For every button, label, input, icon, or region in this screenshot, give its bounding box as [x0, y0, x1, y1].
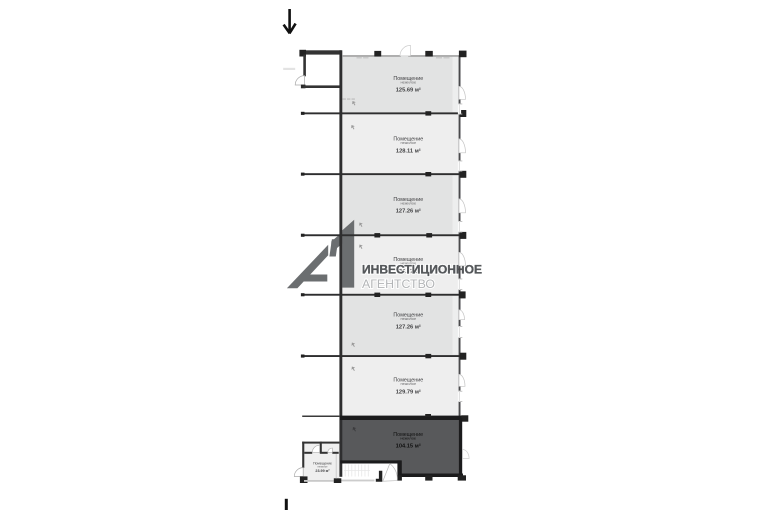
svg-text:нежилое: нежилое: [400, 79, 416, 84]
svg-text:АГЕНТСТВО: АГЕНТСТВО: [362, 277, 435, 291]
svg-text:127.26 м²: 127.26 м²: [396, 208, 421, 215]
svg-text:нежилое: нежилое: [400, 381, 416, 386]
svg-text:128.11 м²: 128.11 м²: [396, 147, 421, 154]
svg-text:нежилое: нежилое: [400, 316, 416, 321]
svg-text:нежилое: нежилое: [400, 200, 416, 205]
svg-text:127.26 м²: 127.26 м²: [396, 323, 421, 330]
svg-text:нежилое: нежилое: [400, 140, 416, 145]
svg-text:нежилое: нежилое: [400, 435, 416, 440]
svg-text:125.69 м²: 125.69 м²: [396, 87, 421, 94]
svg-text:23.99 м²: 23.99 м²: [315, 469, 330, 473]
svg-text:104.15 м²: 104.15 м²: [396, 443, 421, 450]
svg-text:129.79 м²: 129.79 м²: [396, 388, 421, 395]
